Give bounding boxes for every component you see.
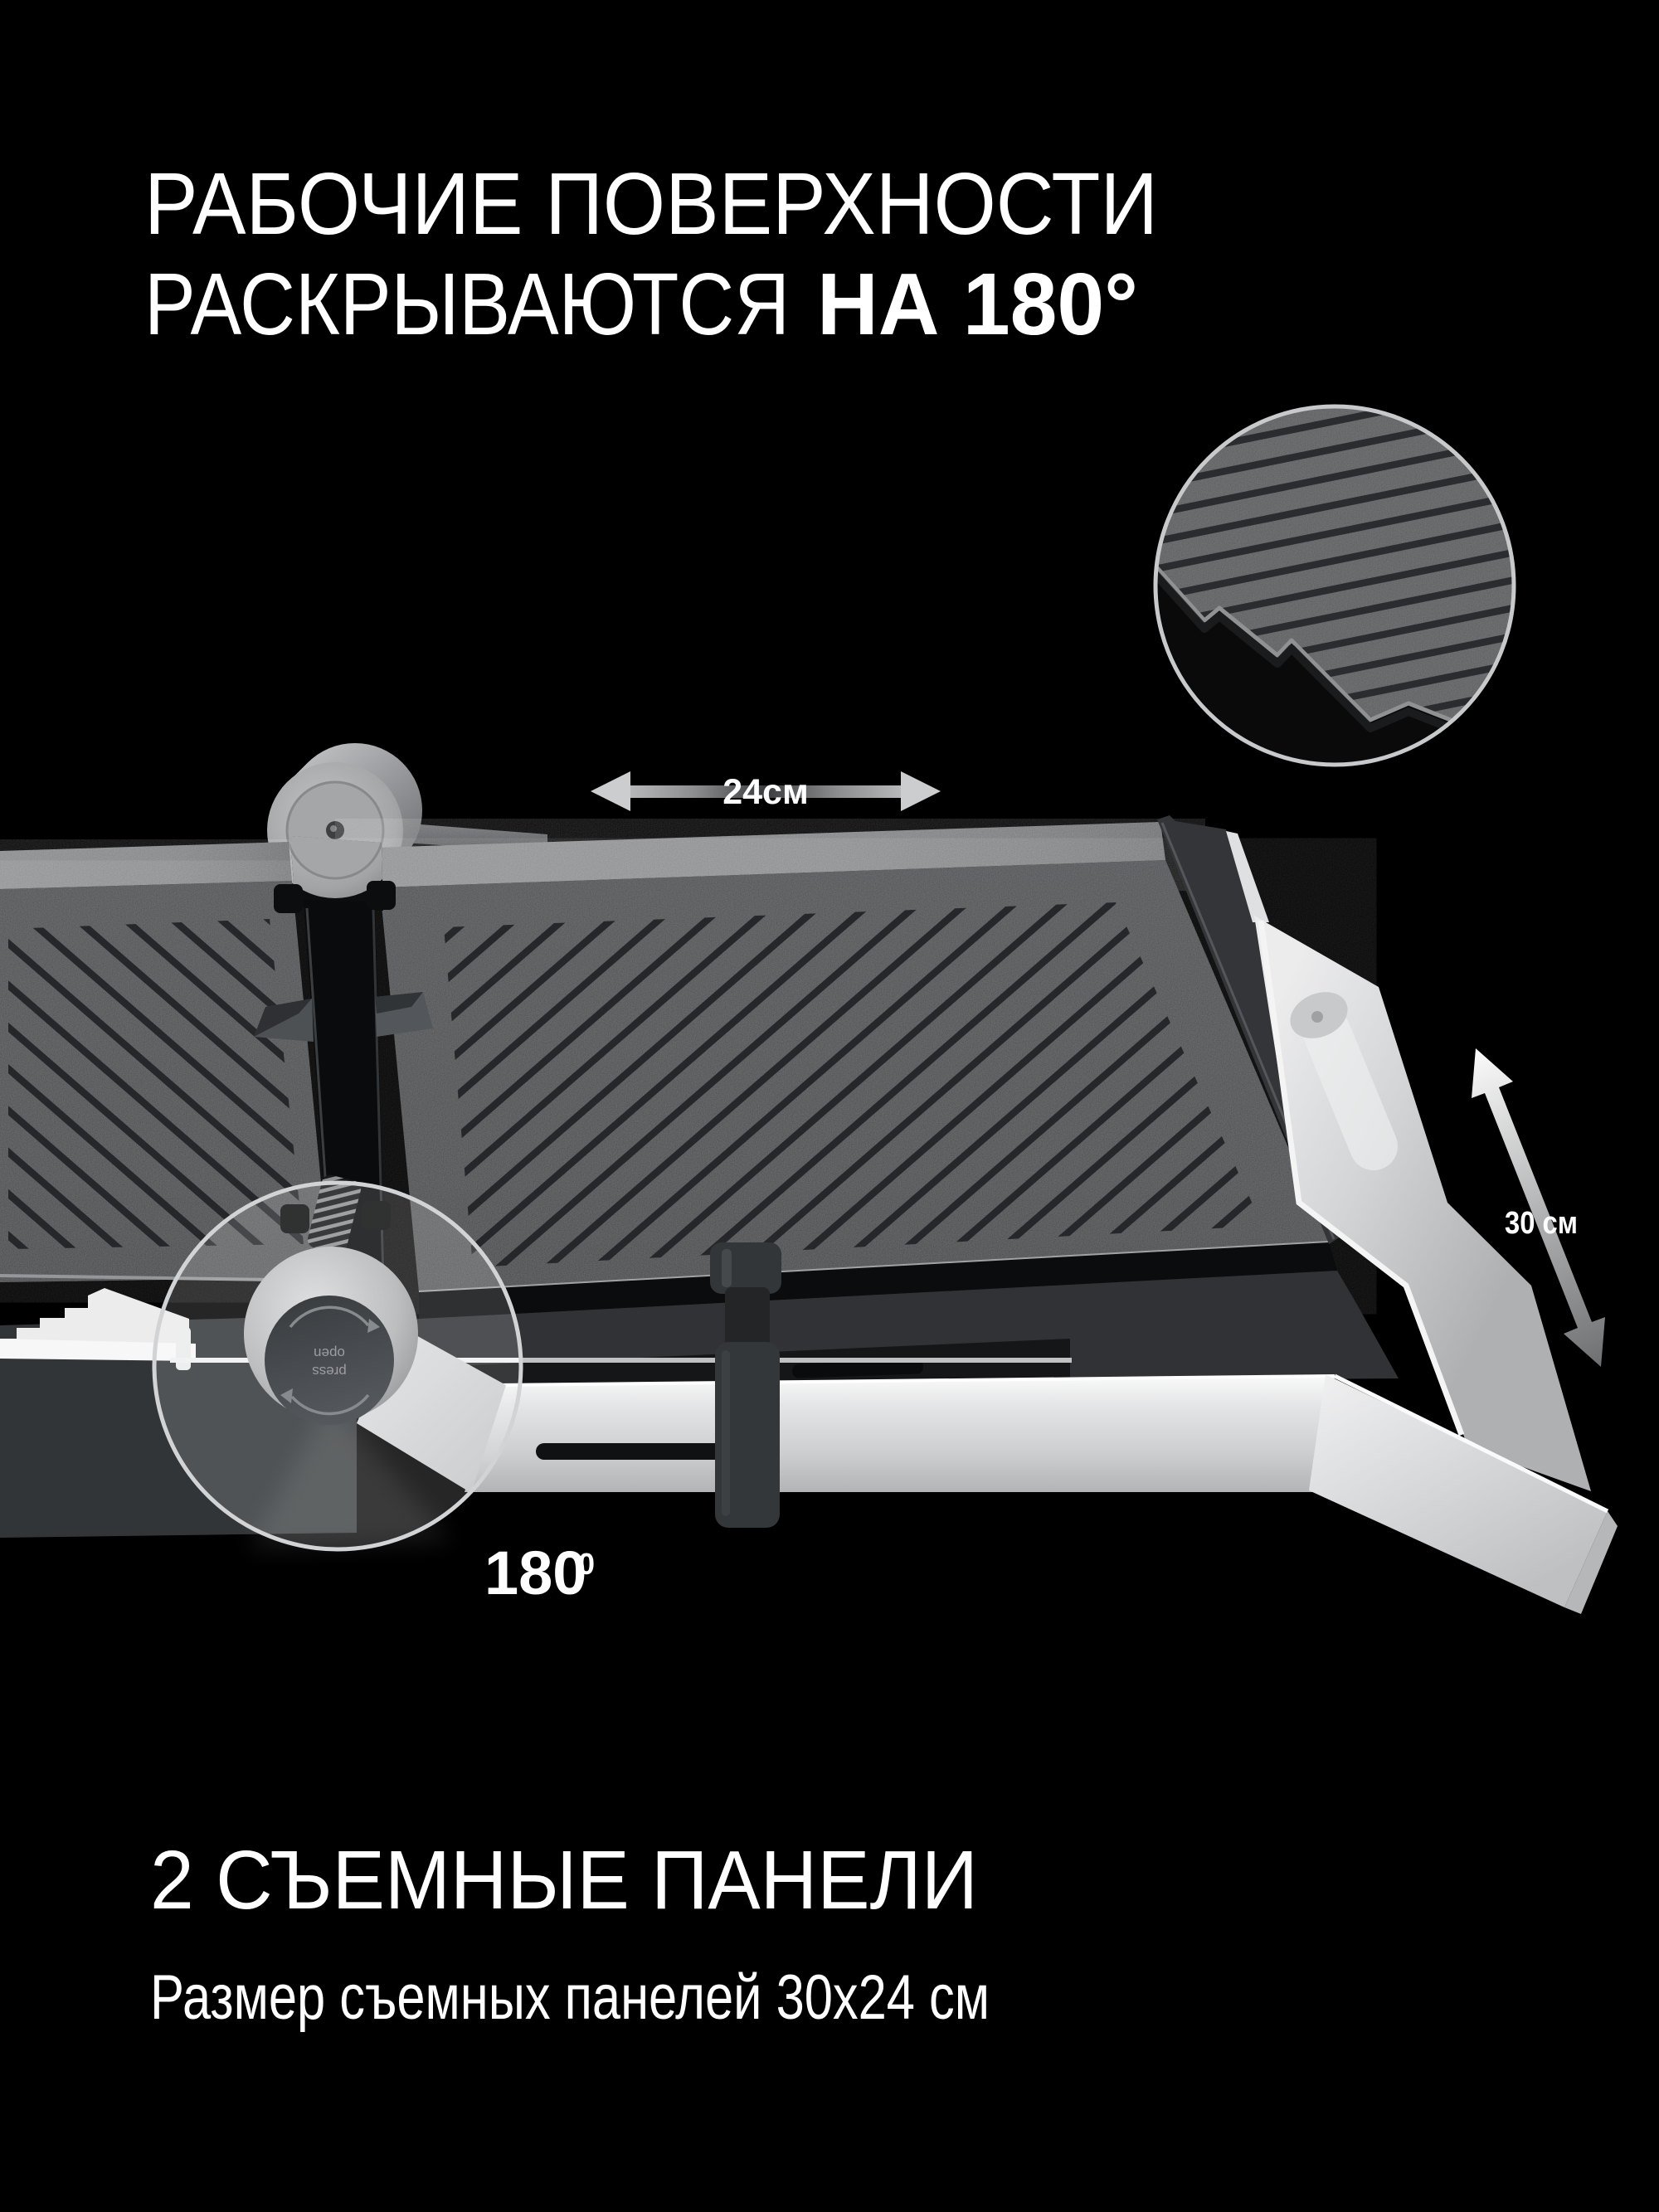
svg-text:24см: 24см	[722, 772, 809, 812]
svg-text:180: 180	[484, 1539, 586, 1607]
svg-text:НА 180°: НА 180°	[817, 255, 1138, 353]
svg-text:0: 0	[578, 1547, 595, 1581]
svg-text:Размер съемных панелей 30х24 с: Размер съемных панелей 30х24 см	[150, 1962, 990, 2033]
svg-text:РАБОЧИЕ ПОВЕРХНОСТИ: РАБОЧИЕ ПОВЕРХНОСТИ	[144, 155, 1158, 253]
svg-text:30 см: 30 см	[1505, 1206, 1578, 1241]
svg-text:open: open	[314, 1345, 345, 1361]
svg-text:press: press	[312, 1364, 347, 1379]
svg-text:2 СЪЕМНЫЕ ПАНЕЛИ: 2 СЪЕМНЫЕ ПАНЕЛИ	[150, 1834, 978, 1927]
svg-text:РАСКРЫВАЮТСЯ: РАСКРЫВАЮТСЯ	[144, 255, 790, 353]
